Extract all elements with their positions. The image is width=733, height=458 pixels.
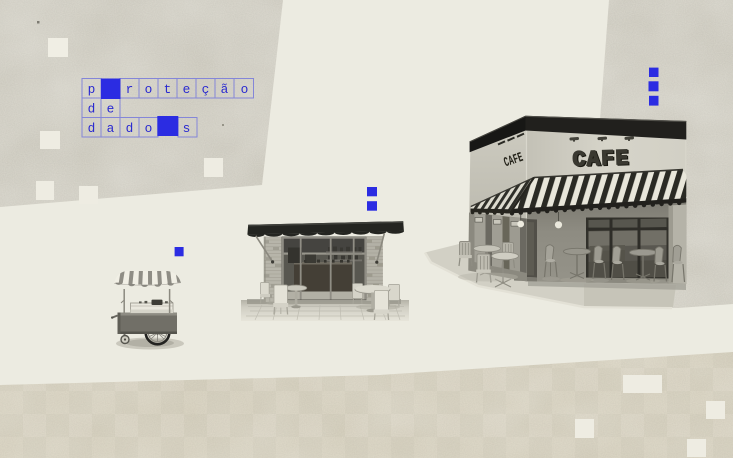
svg-text:e: e (107, 102, 115, 117)
svg-text:o: o (241, 82, 249, 97)
svg-text:CAFE: CAFE (572, 147, 630, 173)
svg-text:d: d (88, 121, 96, 136)
svg-text:ç: ç (202, 82, 210, 97)
svg-text:o: o (145, 82, 153, 97)
svg-text:d: d (88, 102, 96, 117)
svg-text:a: a (107, 121, 115, 136)
svg-text:e: e (183, 82, 191, 97)
svg-text:d: d (126, 121, 134, 136)
svg-text:t: t (164, 82, 172, 97)
svg-text:ã: ã (221, 82, 229, 97)
svg-text:p: p (88, 82, 96, 97)
svg-text:r: r (126, 82, 134, 97)
svg-text:s: s (183, 121, 191, 136)
svg-text:o: o (145, 121, 153, 136)
